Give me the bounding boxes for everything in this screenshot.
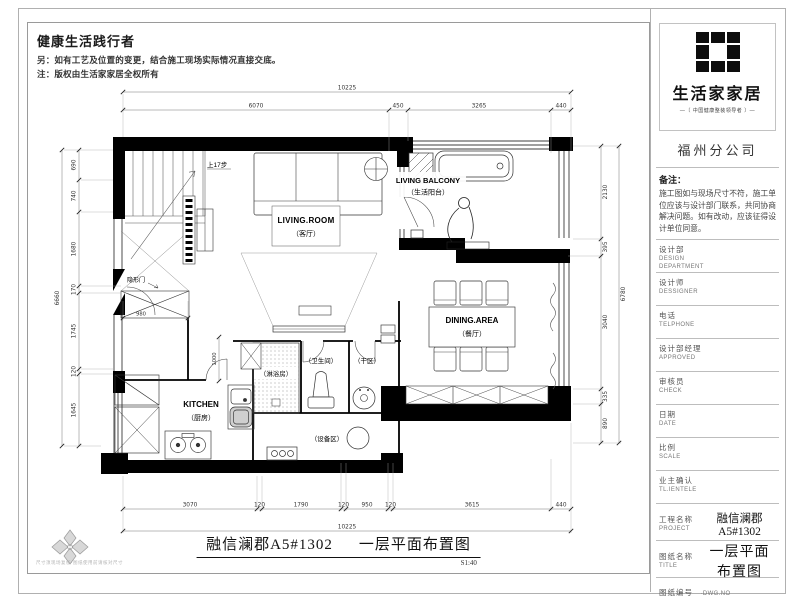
dim-label: 1680 [72,241,78,256]
remark-body: 施工图如与现场尺寸不符，施工单位应该与设计部门联系，共同协商解决问题。如有改动，… [659,188,776,235]
dim-label: 120 [72,366,78,377]
dim-label: 120 [254,503,265,509]
remark-block: 备注： 施工图如与现场尺寸不符，施工单位应该与设计部门联系，共同协商解决问题。如… [651,168,784,239]
brand-logo-box: 生活家家居 —〔 中国健康整装领导者 〕— [659,23,776,131]
dim-label: 890 [603,418,609,429]
field-check: 审核员 CHECK [651,372,784,404]
field-label-en: DATE [659,421,721,429]
field-scale: 比例 SCALE [651,438,784,470]
kitchen-label-cn: （厨房） [187,413,215,422]
floor-plan-svg: LIVING.ROOM （客厅） LIVING BALCONY （生活阳台） D… [28,23,649,573]
sofa [254,153,382,215]
curtain-squiggles [551,283,556,389]
branch-name: 福州分公司 [651,140,784,159]
field-label-cn: 比例 [659,442,776,453]
living-room-label: LIVING.ROOM [277,216,334,225]
dim-label: 1000 [212,352,218,365]
dim-label: 3070 [183,503,198,509]
field-label-cn: 图纸编号 [659,588,693,597]
toilet-label: （卫生间） [305,356,338,365]
dim-label: 950 [361,503,372,509]
living-room-label-cn: （客厅） [292,229,320,238]
dim-label: 3040 [603,314,609,329]
dim-label: 10225 [338,86,357,92]
field-telephone: 电话 TELPHONE [651,306,784,338]
living-label-box [272,206,340,246]
field-label-cn: 设计部经理 [659,343,776,354]
field-approved: 设计部经理 APPROVED [651,339,784,371]
dim-label: 1790 [294,503,309,509]
dim-label: 690 [72,159,78,170]
field-label-en: APPROVED [659,355,721,363]
dim-label: 10225 [338,525,357,531]
project-name-value: 融信澜郡A5#1302 [703,510,776,538]
kitchen-label: KITCHEN [183,400,219,409]
drawing-scale: S1:40 [196,559,481,567]
bay-window [406,386,548,404]
field-label-en: DESSIGNER [659,289,721,297]
shower-label: （淋浴房） [260,369,293,378]
ceiling-fan [365,158,388,181]
dim-label: 440 [555,104,566,110]
drawing-title-name: 一层平面布置图 [359,537,471,553]
dim-label: 440 [555,503,566,509]
bathroom [241,343,375,413]
field-label-en: CHECK [659,388,721,396]
dim-label: 120 [385,503,396,509]
dim-label: 980 [136,312,146,318]
dim-label: 2130 [603,184,609,199]
title-block-sidebar: 生活家家居 —〔 中国健康整装领导者 〕— 福州分公司 备注： 施工图如与现场尺… [651,8,784,592]
equipment-label: （设备区） [311,434,344,443]
field-label-cn: 图纸名称 [659,551,703,562]
dim-label: 335 [603,391,609,402]
hidden-door-label: 隐形门 [127,276,145,284]
page-slogan: 健康生活践行者 [37,31,135,50]
drawing-title-block: 融信澜郡A5#1302一层平面布置图 S1:40 [196,533,481,567]
field-designer: 设计师 DESSIGNER [651,273,784,305]
stairs-label: 上17步 [207,160,228,169]
dining-furniture [381,281,515,371]
dim-label: 6070 [249,104,264,110]
field-label-en: SCALE [659,454,721,462]
closet [183,196,213,264]
remark-title: 备注： [659,173,776,186]
field-drawing-number: 图纸编号 ·DWG.NO [651,578,784,602]
dim-label: 3265 [472,104,487,110]
dim-label: 395 [603,241,609,252]
brand-logo-icon [696,32,740,72]
balcony-label-cn: （生活阳台） [407,188,449,197]
field-design-department: 设计部 DESIGN DEPARTMENT [651,240,784,272]
projection [241,253,377,332]
dim-label: 170 [72,284,78,295]
field-label-cn: 审核员 [659,376,776,387]
dim-label: 1645 [72,402,78,417]
dim-label: 3615 [465,503,480,509]
dining-label: DINING.AREA [446,316,499,325]
field-label-en: ·DWG.NO [700,591,730,597]
field-drawing-name: 图纸名称 TITLE 一层平面布置图 [651,541,784,577]
dry-area-label: （干区） [354,357,380,365]
dim-label: 740 [72,190,78,201]
brand-name: 生活家家居 [660,80,775,104]
field-project-name: 工程名称 PROJECT 融信澜郡A5#1302 [651,504,784,540]
drawing-sheet: { "header": { "slogan": "健康生活践行者", "note… [0,0,800,600]
hidden-door-arrow [148,283,158,288]
fine-print: 尺寸须现场复核·图纸使用前请核对尺寸 [36,560,123,566]
field-label-cn: 设计部 [659,244,776,255]
equipment-area [267,427,369,460]
dim-label: 450 [392,104,403,110]
field-label-en: TELPHONE [659,322,721,330]
drawing-name-value: 一层平面布置图 [703,541,776,581]
field-label-cn: 工程名称 [659,514,703,525]
plan-area: LIVING.ROOM （客厅） LIVING BALCONY （生活阳台） D… [27,22,650,574]
dim-label: 6780 [621,286,627,301]
drawing-title-project: 融信澜郡A5#1302 [206,537,333,553]
note-line-1: 另：如有工艺及位置的变更，结合施工现场实际情况直接交底。 [37,54,281,66]
note-line-2: 注：版权由生活家家居全权所有 [37,68,159,80]
brand-tagline: —〔 中国健康整装领导者 〕— [660,107,775,114]
field-label-cn: 业主确认 [659,475,776,486]
dim-label: 120 [338,503,349,509]
field-label-cn: 日期 [659,409,776,420]
field-label-en: TL.IENTELE [659,487,721,495]
kitchen-fixtures [115,375,254,459]
field-client-confirm: 业主确认 TL.IENTELE [651,471,784,503]
dim-label: 6660 [55,290,61,305]
field-label-en: DESIGN DEPARTMENT [659,256,721,272]
dim-label: 1745 [72,323,78,338]
balcony-label: LIVING BALCONY [396,176,460,185]
field-label-cn: 设计师 [659,277,776,288]
field-date: 日期 DATE [651,405,784,437]
field-label-cn: 电话 [659,310,776,321]
dining-label-cn: （餐厅） [458,329,486,338]
